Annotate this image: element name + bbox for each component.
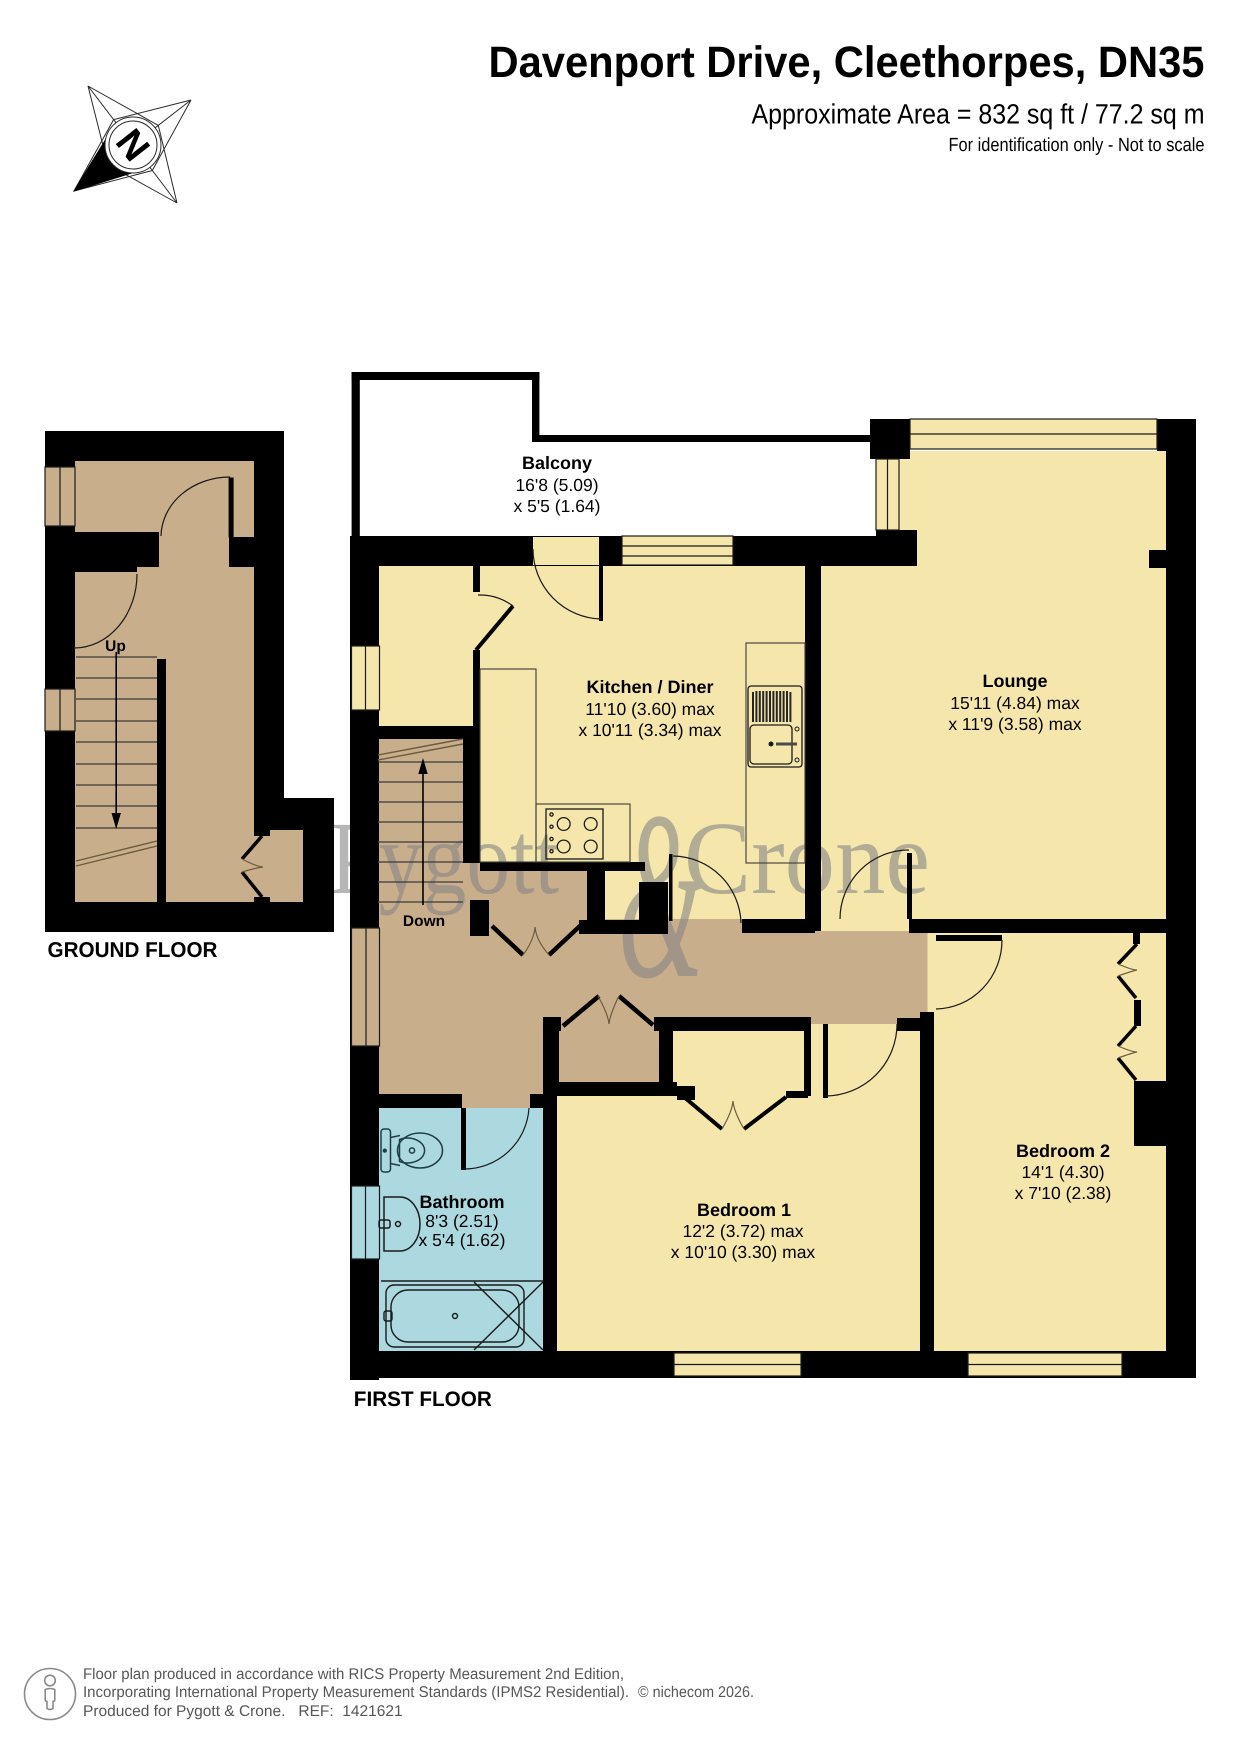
svg-text:16'8 (5.09): 16'8 (5.09) (515, 475, 598, 495)
svg-text:Davenport Drive, Cleethorpes,: Davenport Drive, Cleethorpes, DN35 (489, 38, 1205, 87)
svg-text:12'2 (3.72) max: 12'2 (3.72) max (682, 1221, 803, 1241)
svg-text:© nichecom 2026.: © nichecom 2026. (638, 1684, 754, 1701)
svg-text:Approximate Area = 832 sq ft /: Approximate Area = 832 sq ft / 77.2 sq m (752, 99, 1205, 130)
svg-text:Lounge: Lounge (983, 671, 1048, 691)
svg-text:Balcony: Balcony (522, 453, 592, 473)
svg-text:Bathroom: Bathroom (420, 1192, 505, 1212)
svg-text:Up: Up (105, 638, 126, 655)
svg-text:x 11'9 (3.58) max: x 11'9 (3.58) max (948, 714, 1082, 734)
svg-text:15'11 (4.84) max: 15'11 (4.84) max (950, 693, 1080, 713)
svg-text:8'3 (2.51): 8'3 (2.51) (425, 1211, 498, 1231)
svg-text:FIRST FLOOR: FIRST FLOOR (354, 1388, 492, 1411)
svg-text:Produced for Pygott & Crone.: Produced for Pygott & Crone. REF: 142162… (83, 1703, 403, 1720)
svg-text:For identification only - Not: For identification only - Not to scale (949, 135, 1205, 156)
svg-text:Incorporating International Pr: Incorporating International Property Mea… (83, 1684, 629, 1701)
svg-text:x 5'4 (1.62): x 5'4 (1.62) (419, 1230, 506, 1250)
svg-text:11'10 (3.60) max: 11'10 (3.60) max (585, 699, 715, 719)
svg-text:x 5'5 (1.64): x 5'5 (1.64) (514, 496, 601, 516)
svg-text:Down: Down (403, 913, 445, 930)
svg-text:x 10'10 (3.30) max: x 10'10 (3.30) max (671, 1242, 816, 1262)
svg-text:GROUND FLOOR: GROUND FLOOR (48, 938, 218, 962)
svg-text:x 7'10 (2.38): x 7'10 (2.38) (1015, 1183, 1112, 1203)
svg-text:Floor plan produced in accorda: Floor plan produced in accordance with R… (83, 1666, 624, 1683)
svg-text:14'1 (4.30): 14'1 (4.30) (1021, 1162, 1104, 1182)
svg-text:Bedroom 2: Bedroom 2 (1016, 1141, 1110, 1161)
svg-text:x 10'11 (3.34) max: x 10'11 (3.34) max (578, 720, 721, 740)
svg-text:Kitchen / Diner: Kitchen / Diner (586, 677, 713, 697)
svg-text:Bedroom 1: Bedroom 1 (697, 1200, 791, 1220)
